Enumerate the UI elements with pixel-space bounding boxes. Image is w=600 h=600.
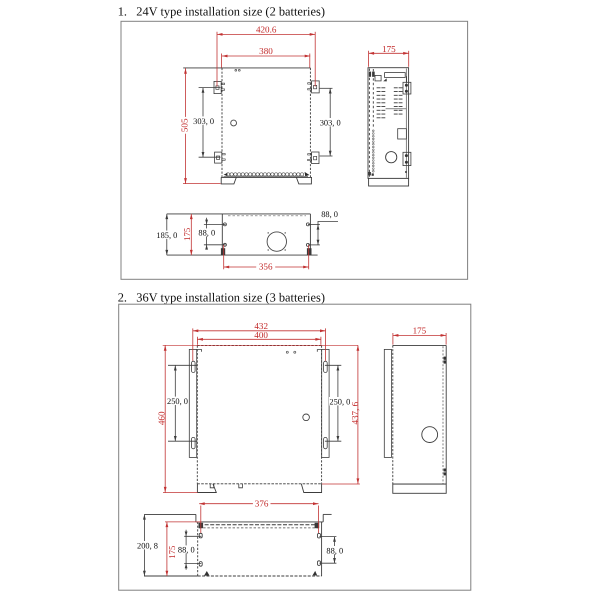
svg-text:505: 505 <box>179 118 189 132</box>
svg-text:1. 24V type installation siz: 1. 24V type installation size (2 batteri… <box>118 4 325 18</box>
svg-text:420.6: 420.6 <box>256 24 277 34</box>
svg-text:303, 0: 303, 0 <box>193 117 214 126</box>
svg-text:88, 0: 88, 0 <box>321 210 338 219</box>
svg-text:175: 175 <box>182 227 192 241</box>
svg-text:400: 400 <box>254 330 268 340</box>
svg-text:88, 0: 88, 0 <box>178 546 195 555</box>
svg-text:175: 175 <box>413 326 427 336</box>
svg-text:303, 0: 303, 0 <box>320 119 341 128</box>
svg-text:185, 0: 185, 0 <box>156 231 177 240</box>
svg-text:200, 8: 200, 8 <box>137 542 158 551</box>
svg-text:88, 0: 88, 0 <box>326 546 343 555</box>
svg-text:460: 460 <box>157 411 167 425</box>
svg-text:380: 380 <box>259 46 273 56</box>
svg-text:356: 356 <box>259 261 273 271</box>
svg-text:175: 175 <box>382 44 396 54</box>
svg-text:250, 0: 250, 0 <box>167 397 188 406</box>
svg-text:437, 6: 437, 6 <box>350 401 360 424</box>
svg-text:250, 0: 250, 0 <box>329 398 350 407</box>
svg-text:376: 376 <box>255 498 269 508</box>
svg-text:88, 0: 88, 0 <box>198 228 215 237</box>
svg-text:175: 175 <box>167 545 177 559</box>
svg-text:2. 36V type installation siz: 2. 36V type installation size (3 batteri… <box>118 291 325 305</box>
